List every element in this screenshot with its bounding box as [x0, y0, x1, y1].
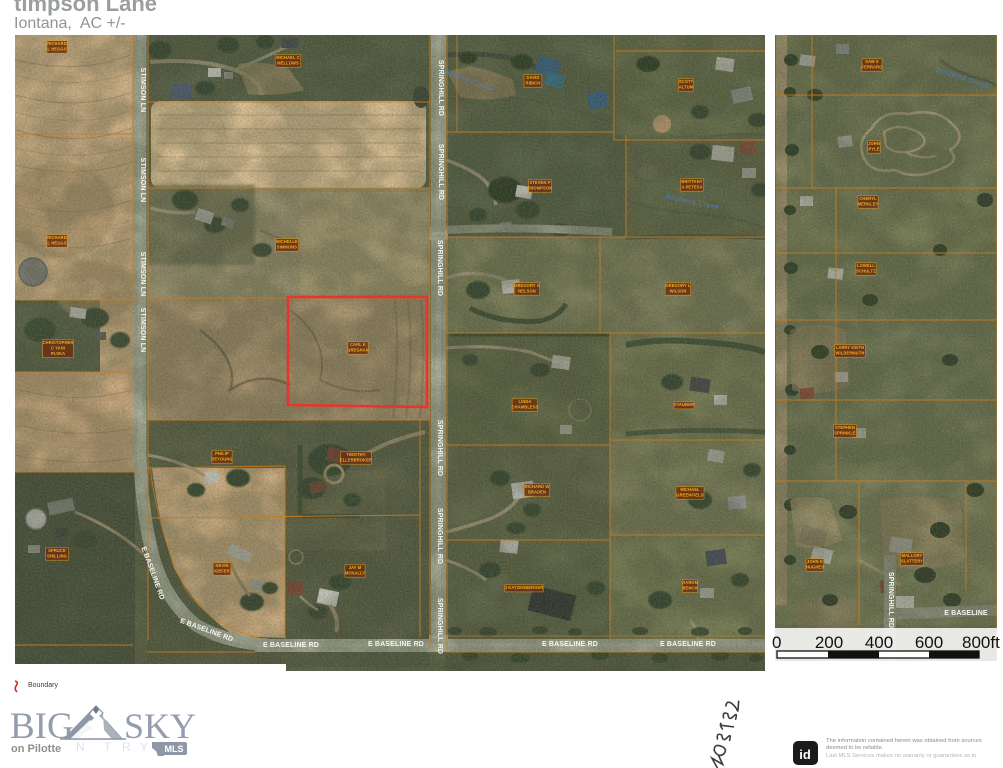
svg-text:SPRUCE: SPRUCE: [48, 548, 66, 553]
svg-text:SKY: SKY: [124, 706, 196, 746]
svg-text:AARON: AARON: [682, 580, 698, 585]
svg-text:CHERYL: CHERYL: [859, 196, 877, 201]
svg-text:Iontana, AC +/-: Iontana, AC +/-: [14, 15, 126, 32]
svg-text:GREENFIELD: GREENFIELD: [676, 493, 703, 498]
svg-text:KEVIN: KEVIN: [215, 563, 228, 568]
svg-text:LINDA: LINDA: [518, 399, 531, 404]
svg-text:STIMSON LN: STIMSON LN: [139, 158, 146, 203]
svg-text:STIMSON LN: STIMSON LN: [139, 308, 146, 353]
svg-text:STEPHEN: STEPHEN: [835, 425, 855, 430]
svg-text:SPRINGHILL RD: SPRINGHILL RD: [436, 420, 443, 476]
svg-text:STIMSON LN: STIMSON LN: [139, 252, 146, 297]
svg-text:BRADEN: BRADEN: [528, 490, 546, 495]
svg-text:MERKLEY: MERKLEY: [858, 202, 879, 207]
svg-text:Boundary: Boundary: [28, 682, 58, 689]
svg-text:DEYOUNG: DEYOUNG: [211, 457, 232, 462]
svg-text:HUGHES: HUGHES: [806, 565, 824, 570]
svg-text:Y: Y: [140, 740, 148, 754]
svg-text:N: N: [76, 740, 85, 754]
svg-text:SPRINGHILL RD: SPRINGHILL RD: [436, 598, 443, 654]
svg-text:ELLERBROKER: ELLERBROKER: [340, 458, 372, 463]
svg-text:SCHULTZ: SCHULTZ: [856, 269, 876, 274]
svg-text:PHILIP: PHILIP: [215, 451, 229, 456]
svg-text:CHAMBLESS: CHAMBLESS: [512, 405, 539, 410]
svg-text:600: 600: [915, 633, 943, 652]
svg-text:E BASELINE RD: E BASELINE RD: [542, 641, 598, 648]
svg-text:JOHN: JOHN: [868, 141, 880, 146]
svg-text:WILDERMUTH: WILDERMUTH: [836, 351, 865, 356]
svg-text:PYLE: PYLE: [868, 147, 879, 152]
svg-text:FERRARO: FERRARO: [862, 65, 884, 70]
svg-text:MCNALLY: MCNALLY: [345, 571, 366, 576]
svg-text:BIG: BIG: [10, 706, 74, 747]
svg-text:400: 400: [865, 633, 893, 652]
svg-text:R: R: [122, 740, 131, 754]
svg-text:SAM S: SAM S: [865, 59, 879, 64]
svg-text:CARL E: CARL E: [350, 342, 366, 347]
svg-text:SCOTT: SCOTT: [679, 79, 694, 84]
svg-text:SPRINKLE: SPRINKLE: [834, 431, 856, 436]
svg-text:T: T: [104, 740, 112, 754]
svg-text:L HEGGS: L HEGGS: [47, 47, 66, 52]
svg-text:id: id: [799, 747, 811, 762]
svg-text:SPRINGHILL RD: SPRINGHILL RD: [436, 240, 443, 296]
svg-text:BENCH: BENCH: [682, 586, 697, 591]
svg-text:200: 200: [815, 633, 843, 652]
svg-text:A PETESA: A PETESA: [681, 185, 702, 190]
svg-text:SLATTERY: SLATTERY: [901, 559, 923, 564]
svg-text:E BASELINE RD: E BASELINE RD: [368, 641, 424, 648]
svg-text:800ft: 800ft: [962, 633, 1000, 652]
svg-text:SPRINGHILL RD: SPRINGHILL RD: [887, 572, 894, 628]
svg-text:SIMMONS: SIMMONS: [277, 245, 297, 250]
svg-text:SPRINGHILL RD: SPRINGHILL RD: [437, 60, 444, 116]
svg-text:STIMSON LN: STIMSON LN: [139, 68, 146, 113]
svg-text:MICHELLE: MICHELLE: [276, 239, 298, 244]
svg-text:CHRISTOPHER: CHRISTOPHER: [43, 340, 74, 345]
svg-text:ALTUM: ALTUM: [679, 85, 694, 90]
svg-text:SHILLING: SHILLING: [47, 554, 67, 559]
svg-text:Last MLS Services makes no war: Last MLS Services makes no warranty or g…: [826, 753, 976, 759]
svg-text:C YANI: C YANI: [51, 346, 65, 351]
svg-text:E BASELINE RD: E BASELINE RD: [263, 642, 319, 649]
svg-text:timpson Lane: timpson Lane: [14, 0, 157, 16]
svg-text:DAVID: DAVID: [527, 75, 540, 80]
svg-text:LARRY KEITH: LARRY KEITH: [836, 345, 864, 350]
svg-text:RICHARD W: RICHARD W: [525, 484, 550, 489]
svg-text:WILSON: WILSON: [670, 289, 687, 294]
svg-text:PLSKA: PLSKA: [51, 351, 65, 356]
svg-text:MALLORY: MALLORY: [902, 553, 923, 558]
svg-text:RICHARD: RICHARD: [47, 41, 67, 46]
svg-text:JAY M: JAY M: [349, 565, 362, 570]
svg-text:GREGHAN: GREGHAN: [347, 348, 369, 353]
svg-text:The information contained here: The information contained herein was obt…: [826, 738, 982, 744]
svg-text:JOHN K: JOHN K: [807, 559, 823, 564]
svg-text:BRITTANY: BRITTANY: [681, 179, 702, 184]
svg-text:SPRINGHILL RD: SPRINGHILL RD: [436, 508, 443, 564]
svg-text:E BASELINE: E BASELINE: [944, 610, 988, 617]
svg-text:SPRINGHILL RD: SPRINGHILL RD: [437, 144, 444, 200]
svg-text:STAUBER: STAUBER: [674, 402, 694, 407]
svg-text:GREGORY L: GREGORY L: [665, 283, 691, 288]
svg-text:MELLOWS: MELLOWS: [277, 61, 299, 66]
svg-text:MLS: MLS: [165, 744, 184, 754]
svg-text:J KATZENBERGER: J KATZENBERGER: [505, 585, 544, 590]
svg-text:E BASELINE RD: E BASELINE RD: [660, 641, 716, 648]
svg-text:GREGORY A: GREGORY A: [514, 283, 540, 288]
svg-text:STEVEN P: STEVEN P: [529, 180, 550, 185]
svg-text:LOWELL: LOWELL: [857, 263, 875, 268]
svg-text:MICHAEL C: MICHAEL C: [276, 55, 300, 60]
svg-text:MICHAEL: MICHAEL: [680, 487, 700, 492]
svg-text:TIMOTHY: TIMOTHY: [346, 452, 365, 457]
svg-text:THOMPSON: THOMPSON: [528, 186, 552, 191]
svg-text:KIEFER: KIEFER: [214, 569, 230, 574]
svg-text:0: 0: [772, 633, 781, 652]
svg-text:RIBICH: RIBICH: [526, 81, 541, 86]
svg-text:NELSON: NELSON: [518, 289, 536, 294]
svg-text:on Pilotte: on Pilotte: [11, 743, 61, 755]
svg-text:RICHARD: RICHARD: [47, 235, 67, 240]
svg-text:L HEGGS: L HEGGS: [47, 241, 66, 246]
svg-text:deemed to be reliable.: deemed to be reliable.: [826, 745, 884, 751]
